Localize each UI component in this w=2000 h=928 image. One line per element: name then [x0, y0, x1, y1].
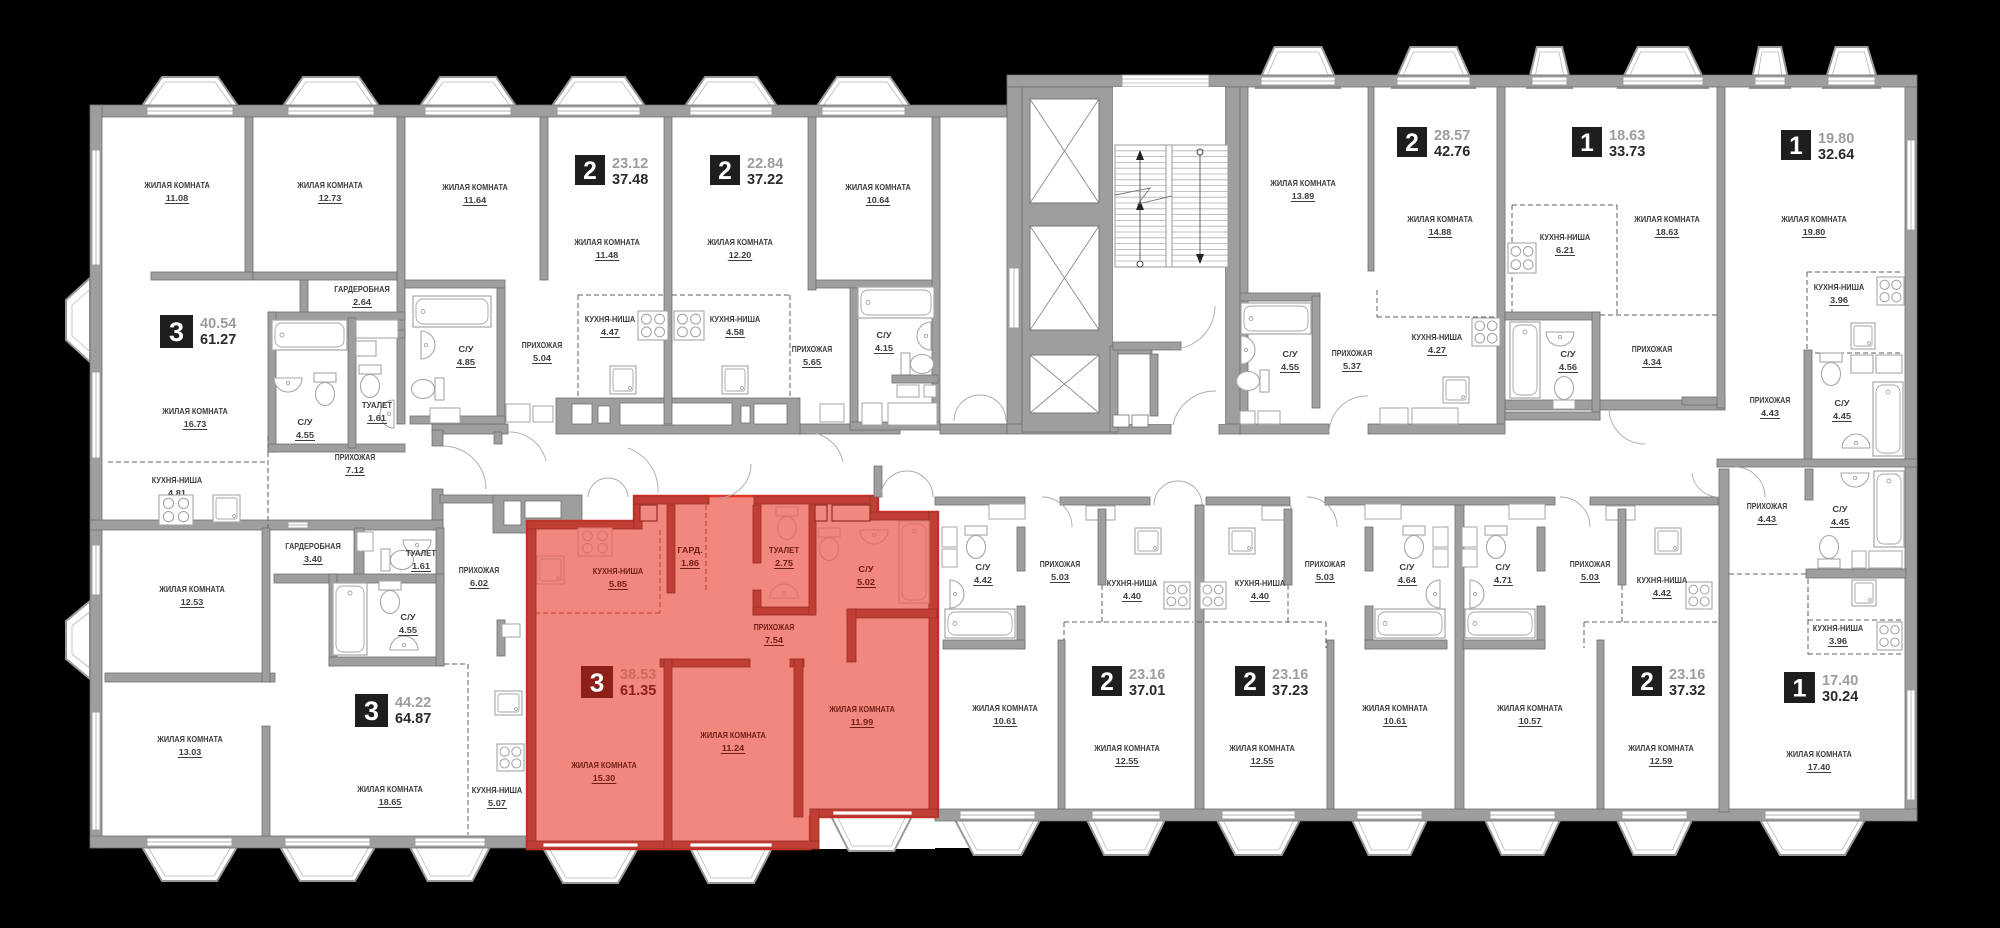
svg-text:11.99: 11.99 — [851, 717, 874, 727]
svg-text:ЖИЛАЯ КОМНАТА: ЖИЛАЯ КОМНАТА — [1406, 214, 1472, 224]
svg-text:13.89: 13.89 — [1292, 191, 1315, 201]
svg-text:4.42: 4.42 — [1653, 588, 1671, 598]
svg-text:КУХНЯ-НИША: КУХНЯ-НИША — [1637, 575, 1688, 585]
svg-text:С/У: С/У — [1834, 398, 1850, 408]
svg-text:КУХНЯ-НИША: КУХНЯ-НИША — [1412, 332, 1463, 342]
svg-text:ЖИЛАЯ КОМНАТА: ЖИЛАЯ КОМНАТА — [570, 760, 636, 770]
svg-text:61.35: 61.35 — [620, 683, 656, 699]
svg-text:КУХНЯ-НИША: КУХНЯ-НИША — [593, 566, 644, 576]
svg-text:ЖИЛАЯ КОМНАТА: ЖИЛАЯ КОМНАТА — [296, 180, 362, 190]
svg-text:КУХНЯ-НИША: КУХНЯ-НИША — [710, 314, 761, 324]
svg-text:С/У: С/У — [1399, 562, 1415, 572]
svg-text:5.03: 5.03 — [1581, 572, 1599, 582]
svg-text:10.57: 10.57 — [1519, 716, 1542, 726]
svg-text:12.73: 12.73 — [319, 193, 342, 203]
svg-text:ТУАЛЕТ: ТУАЛЕТ — [406, 548, 437, 558]
svg-text:5.03: 5.03 — [1316, 572, 1334, 582]
svg-text:ЖИЛАЯ КОМНАТА: ЖИЛАЯ КОМНАТА — [1093, 743, 1159, 753]
svg-text:11.48: 11.48 — [596, 250, 619, 260]
svg-text:ЖИЛАЯ КОМНАТА: ЖИЛАЯ КОМНАТА — [573, 237, 639, 247]
svg-text:ЖИЛАЯ КОМНАТА: ЖИЛАЯ КОМНАТА — [143, 180, 209, 190]
svg-text:ТУАЛЕТ: ТУАЛЕТ — [362, 400, 393, 410]
svg-text:44.22: 44.22 — [395, 695, 431, 711]
svg-text:4.85: 4.85 — [457, 357, 475, 367]
svg-text:22.84: 22.84 — [747, 156, 783, 172]
svg-text:32.64: 32.64 — [1818, 147, 1854, 163]
svg-text:ЖИЛАЯ КОМНАТА: ЖИЛАЯ КОМНАТА — [1361, 703, 1427, 713]
svg-text:ПРИХОЖАЯ: ПРИХОЖАЯ — [522, 340, 562, 350]
svg-text:4.40: 4.40 — [1123, 591, 1141, 601]
svg-text:19.80: 19.80 — [1818, 131, 1854, 147]
svg-text:33.73: 33.73 — [1609, 144, 1645, 160]
svg-text:7.54: 7.54 — [765, 635, 783, 645]
svg-text:2: 2 — [718, 158, 732, 185]
svg-text:С/У: С/У — [297, 417, 313, 427]
svg-text:4.58: 4.58 — [726, 327, 744, 337]
svg-text:4.55: 4.55 — [296, 430, 314, 440]
svg-text:С/У: С/У — [1832, 504, 1848, 514]
svg-text:ЖИЛАЯ КОМНАТА: ЖИЛАЯ КОМНАТА — [356, 784, 422, 794]
svg-text:61.27: 61.27 — [200, 332, 236, 348]
svg-text:16.73: 16.73 — [184, 419, 207, 429]
svg-text:ПРИХОЖАЯ: ПРИХОЖАЯ — [754, 622, 794, 632]
svg-text:2: 2 — [1640, 669, 1654, 696]
svg-text:ПРИХОЖАЯ: ПРИХОЖАЯ — [792, 344, 832, 354]
svg-text:ПРИХОЖАЯ: ПРИХОЖАЯ — [1750, 395, 1790, 405]
svg-text:13.03: 13.03 — [179, 747, 202, 757]
svg-text:28.57: 28.57 — [1434, 128, 1470, 144]
svg-text:18.63: 18.63 — [1656, 227, 1679, 237]
svg-text:ЖИЛАЯ КОМНАТА: ЖИЛАЯ КОМНАТА — [828, 704, 894, 714]
svg-text:6.02: 6.02 — [470, 578, 488, 588]
svg-text:37.01: 37.01 — [1129, 683, 1165, 699]
svg-text:18.65: 18.65 — [379, 797, 402, 807]
svg-text:С/У: С/У — [876, 330, 892, 340]
svg-text:ЖИЛАЯ КОМНАТА: ЖИЛАЯ КОМНАТА — [1780, 214, 1846, 224]
svg-text:ПРИХОЖАЯ: ПРИХОЖАЯ — [1570, 559, 1610, 569]
svg-text:2: 2 — [583, 158, 597, 185]
svg-text:64.87: 64.87 — [395, 711, 431, 727]
svg-text:КУХНЯ-НИША: КУХНЯ-НИША — [1235, 578, 1286, 588]
svg-text:С/У: С/У — [1495, 562, 1511, 572]
svg-text:ЖИЛАЯ КОМНАТА: ЖИЛАЯ КОМНАТА — [1785, 749, 1851, 759]
svg-text:4.43: 4.43 — [1758, 514, 1776, 524]
svg-text:ЖИЛАЯ КОМНАТА: ЖИЛАЯ КОМНАТА — [1496, 703, 1562, 713]
svg-text:1: 1 — [1792, 675, 1806, 703]
svg-text:12.55: 12.55 — [1116, 756, 1139, 766]
svg-text:14.88: 14.88 — [1429, 227, 1452, 237]
svg-text:10.64: 10.64 — [867, 195, 890, 205]
svg-text:1.86: 1.86 — [681, 558, 699, 568]
svg-text:30.24: 30.24 — [1822, 689, 1858, 705]
svg-text:37.48: 37.48 — [612, 172, 648, 188]
svg-text:5.85: 5.85 — [609, 579, 627, 589]
svg-text:5.04: 5.04 — [533, 353, 551, 363]
svg-text:3.40: 3.40 — [304, 554, 322, 564]
svg-text:12.53: 12.53 — [181, 597, 204, 607]
svg-text:ЖИЛАЯ КОМНАТА: ЖИЛАЯ КОМНАТА — [699, 730, 765, 740]
svg-text:С/У: С/У — [858, 564, 874, 574]
svg-text:5.03: 5.03 — [1051, 572, 1069, 582]
svg-text:4.40: 4.40 — [1251, 591, 1269, 601]
svg-text:3: 3 — [364, 696, 379, 726]
svg-text:23.12: 23.12 — [612, 156, 648, 172]
svg-text:ЖИЛАЯ КОМНАТА: ЖИЛАЯ КОМНАТА — [971, 703, 1037, 713]
svg-text:2: 2 — [1100, 669, 1114, 696]
svg-text:ЖИЛАЯ КОМНАТА: ЖИЛАЯ КОМНАТА — [161, 406, 227, 416]
svg-text:37.23: 37.23 — [1272, 683, 1308, 699]
svg-text:КУХНЯ-НИША: КУХНЯ-НИША — [585, 314, 636, 324]
svg-text:4.27: 4.27 — [1428, 345, 1446, 355]
svg-text:С/У: С/У — [1560, 349, 1576, 359]
svg-text:23.16: 23.16 — [1129, 667, 1165, 683]
svg-text:1: 1 — [1789, 133, 1803, 160]
svg-text:1.61: 1.61 — [368, 413, 386, 423]
svg-text:КУХНЯ-НИША: КУХНЯ-НИША — [1814, 282, 1865, 292]
svg-text:4.45: 4.45 — [1831, 517, 1849, 527]
svg-text:10.61: 10.61 — [1384, 716, 1407, 726]
svg-text:ЖИЛАЯ КОМНАТА: ЖИЛАЯ КОМНАТА — [1228, 743, 1294, 753]
svg-text:11.64: 11.64 — [464, 195, 487, 205]
svg-text:38.53: 38.53 — [620, 667, 656, 683]
svg-text:17.40: 17.40 — [1808, 762, 1831, 772]
svg-text:40.54: 40.54 — [200, 316, 236, 332]
svg-text:3: 3 — [590, 667, 605, 697]
svg-text:4.64: 4.64 — [1398, 575, 1416, 585]
svg-text:4.45: 4.45 — [1833, 411, 1851, 421]
svg-text:КУХНЯ-НИША: КУХНЯ-НИША — [1813, 623, 1864, 633]
svg-text:10.61: 10.61 — [994, 716, 1017, 726]
svg-text:С/У: С/У — [1282, 349, 1298, 359]
svg-text:ПРИХОЖАЯ: ПРИХОЖАЯ — [1305, 559, 1345, 569]
svg-text:ЖИЛАЯ КОМНАТА: ЖИЛАЯ КОМНАТА — [156, 734, 222, 744]
svg-text:КУХНЯ-НИША: КУХНЯ-НИША — [152, 475, 203, 485]
svg-text:4.55: 4.55 — [399, 625, 417, 635]
svg-text:2.64: 2.64 — [353, 297, 371, 307]
svg-text:ПРИХОЖАЯ: ПРИХОЖАЯ — [1632, 344, 1672, 354]
svg-text:ТУАЛЕТ: ТУАЛЕТ — [769, 545, 800, 555]
svg-text:12.20: 12.20 — [729, 250, 752, 260]
svg-text:3.96: 3.96 — [1829, 636, 1847, 646]
svg-text:4.56: 4.56 — [1559, 362, 1577, 372]
svg-text:11.24: 11.24 — [722, 743, 745, 753]
svg-text:ЖИЛАЯ КОМНАТА: ЖИЛАЯ КОМНАТА — [441, 182, 507, 192]
svg-text:5.37: 5.37 — [1343, 361, 1361, 371]
svg-text:ЖИЛАЯ КОМНАТА: ЖИЛАЯ КОМНАТА — [1633, 214, 1699, 224]
svg-text:3.96: 3.96 — [1830, 295, 1848, 305]
svg-text:6.21: 6.21 — [1556, 245, 1574, 255]
svg-text:19.80: 19.80 — [1803, 227, 1826, 237]
svg-text:ЖИЛАЯ КОМНАТА: ЖИЛАЯ КОМНАТА — [706, 237, 772, 247]
svg-text:5.07: 5.07 — [488, 798, 506, 808]
svg-text:4.42: 4.42 — [974, 575, 992, 585]
svg-text:ЖИЛАЯ КОМНАТА: ЖИЛАЯ КОМНАТА — [844, 182, 910, 192]
svg-text:1: 1 — [1580, 130, 1594, 157]
svg-text:ПРИХОЖАЯ: ПРИХОЖАЯ — [335, 452, 375, 462]
svg-text:23.16: 23.16 — [1272, 667, 1308, 683]
svg-text:1.61: 1.61 — [412, 561, 430, 571]
svg-text:С/У: С/У — [458, 344, 474, 354]
svg-text:3: 3 — [169, 317, 184, 347]
svg-text:ГАРДЕРОБНАЯ: ГАРДЕРОБНАЯ — [285, 541, 341, 551]
svg-text:15.30: 15.30 — [593, 773, 616, 783]
svg-text:ГАРД.: ГАРД. — [677, 545, 702, 555]
svg-text:ЖИЛАЯ КОМНАТА: ЖИЛАЯ КОМНАТА — [1269, 178, 1335, 188]
svg-text:ЖИЛАЯ КОМНАТА: ЖИЛАЯ КОМНАТА — [1627, 743, 1693, 753]
svg-text:ПРИХОЖАЯ: ПРИХОЖАЯ — [1747, 501, 1787, 511]
svg-text:ГАРДЕРОБНАЯ: ГАРДЕРОБНАЯ — [334, 284, 390, 294]
svg-text:37.32: 37.32 — [1669, 683, 1705, 699]
svg-text:4.71: 4.71 — [1494, 575, 1512, 585]
svg-text:4.43: 4.43 — [1761, 408, 1779, 418]
svg-text:С/У: С/У — [975, 562, 991, 572]
svg-text:КУХНЯ-НИША: КУХНЯ-НИША — [472, 785, 523, 795]
svg-text:11.08: 11.08 — [166, 193, 189, 203]
svg-text:12.55: 12.55 — [1251, 756, 1274, 766]
svg-text:2.75: 2.75 — [775, 558, 793, 568]
svg-text:12.59: 12.59 — [1650, 756, 1673, 766]
svg-text:23.16: 23.16 — [1669, 667, 1705, 683]
svg-text:ПРИХОЖАЯ: ПРИХОЖАЯ — [1040, 559, 1080, 569]
svg-text:ПРИХОЖАЯ: ПРИХОЖАЯ — [1332, 348, 1372, 358]
svg-text:КУХНЯ-НИША: КУХНЯ-НИША — [1107, 578, 1158, 588]
svg-text:2: 2 — [1243, 669, 1257, 696]
svg-text:7.12: 7.12 — [346, 465, 364, 475]
svg-text:4.55: 4.55 — [1281, 362, 1299, 372]
svg-text:37.22: 37.22 — [747, 172, 783, 188]
svg-text:ЖИЛАЯ КОМНАТА: ЖИЛАЯ КОМНАТА — [158, 584, 224, 594]
svg-text:42.76: 42.76 — [1434, 144, 1470, 160]
svg-text:КУХНЯ-НИША: КУХНЯ-НИША — [1540, 232, 1591, 242]
svg-text:4.34: 4.34 — [1643, 357, 1661, 367]
svg-text:4.47: 4.47 — [601, 327, 619, 337]
svg-text:5.65: 5.65 — [803, 357, 821, 367]
svg-text:ПРИХОЖАЯ: ПРИХОЖАЯ — [459, 565, 499, 575]
svg-text:5.02: 5.02 — [857, 577, 875, 587]
svg-text:17.40: 17.40 — [1822, 673, 1858, 689]
svg-text:2: 2 — [1405, 130, 1419, 157]
svg-text:18.63: 18.63 — [1609, 128, 1645, 144]
svg-text:С/У: С/У — [400, 612, 416, 622]
svg-text:4.15: 4.15 — [875, 343, 893, 353]
